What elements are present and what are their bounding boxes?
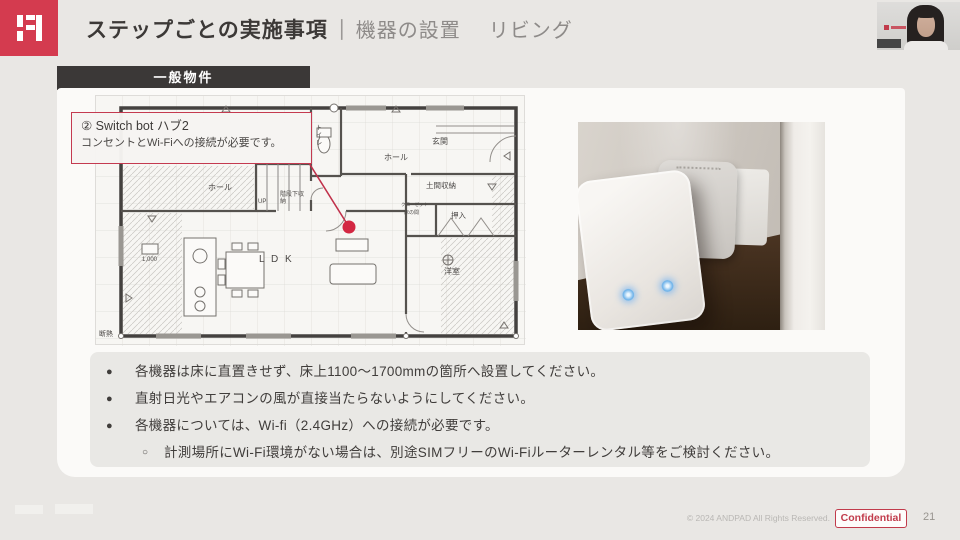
room-label-oshiire: 押入 [451, 210, 466, 221]
title-separator: ｜ [332, 20, 352, 42]
dimension-label: 1,000 [142, 257, 157, 263]
photo-wall-pillar [780, 122, 825, 330]
list-item: ● 各機器については、Wi-fi（2.4GHz）への接続が必要です。 [90, 417, 870, 435]
watermark-artifact [55, 504, 93, 514]
photo-device-vents [676, 166, 720, 170]
photo-led-indicator-right [661, 279, 674, 292]
bullet-circle-icon: ○ [142, 444, 148, 462]
room-label-tokonoma: 床の間 [404, 209, 419, 216]
bullet-icon: ● [106, 417, 113, 435]
title-section: 機器の設置 [356, 20, 461, 42]
webcam-background-logo-icon [884, 25, 889, 30]
room-label-ldk: L D K [259, 254, 294, 265]
bullet-icon: ● [106, 390, 113, 408]
confidential-badge: Confidential [835, 509, 907, 528]
list-item: ● 直射日光やエアコンの風が直接当たらないようにしてください。 [90, 390, 870, 408]
copyright-text: © 2024 ANDPAD All Rights Reserved. [687, 513, 830, 523]
webcam-thumbnail[interactable] [877, 2, 960, 50]
title-subsection: リビング [489, 20, 573, 42]
participant-name-label [877, 39, 901, 48]
list-item-sub: ○ 計測場所にWi-Fi環境がない場合は、別途SIMフリーのWi-Fiルーターレ… [90, 444, 870, 462]
room-label-toilet: トイレ [312, 124, 322, 147]
andpad-logo-icon [0, 0, 58, 56]
room-label-hall-left: ホール [208, 182, 232, 193]
list-item: ● 各機器は床に直置きせず、床上1100〜1700mmの箇所へ設置してください。 [90, 363, 870, 381]
photo-hub-device-front [578, 169, 707, 330]
callout-title: ② Switch bot ハブ2 [81, 118, 302, 136]
presenter-shirt [904, 41, 948, 50]
room-label-yoshitsu: 洋室 [444, 266, 460, 277]
title-main: ステップごとの実施事項 [86, 19, 328, 42]
label-up: UP [258, 199, 266, 205]
presenter-fringe [915, 10, 937, 18]
page-title: ステップごとの実施事項｜機器の設置リビング [86, 14, 573, 44]
callout-description: コンセントとWi-Fiへの接続が必要です。 [81, 136, 302, 151]
label-insulation: 断熱 [99, 329, 113, 339]
slide: ステップごとの実施事項｜機器の設置リビング 一般物件 [0, 0, 960, 540]
device-location-dot [343, 221, 356, 234]
room-label-genkan: 玄関 [432, 136, 448, 147]
room-label-hall-right: ホール [384, 152, 408, 163]
room-label-doma-storage: 土間収納 [426, 180, 456, 191]
bullet-icon: ● [106, 363, 113, 381]
watermark-artifact [15, 505, 43, 514]
page-number: 21 [923, 511, 935, 523]
photo-led-indicator-left [622, 288, 635, 301]
room-label-closet: クローゼット [401, 202, 428, 208]
device-photo [578, 122, 825, 330]
instruction-list: ● 各機器は床に直置きせず、床上1100〜1700mmの箇所へ設置してください。… [90, 352, 870, 467]
webcam-background-logo-text [891, 26, 906, 29]
room-label-stair-storage: 階段下収納 [280, 192, 304, 206]
device-callout: ② Switch bot ハブ2 コンセントとWi-Fiへの接続が必要です。 [71, 112, 312, 164]
property-type-badge: 一般物件 [57, 66, 310, 90]
